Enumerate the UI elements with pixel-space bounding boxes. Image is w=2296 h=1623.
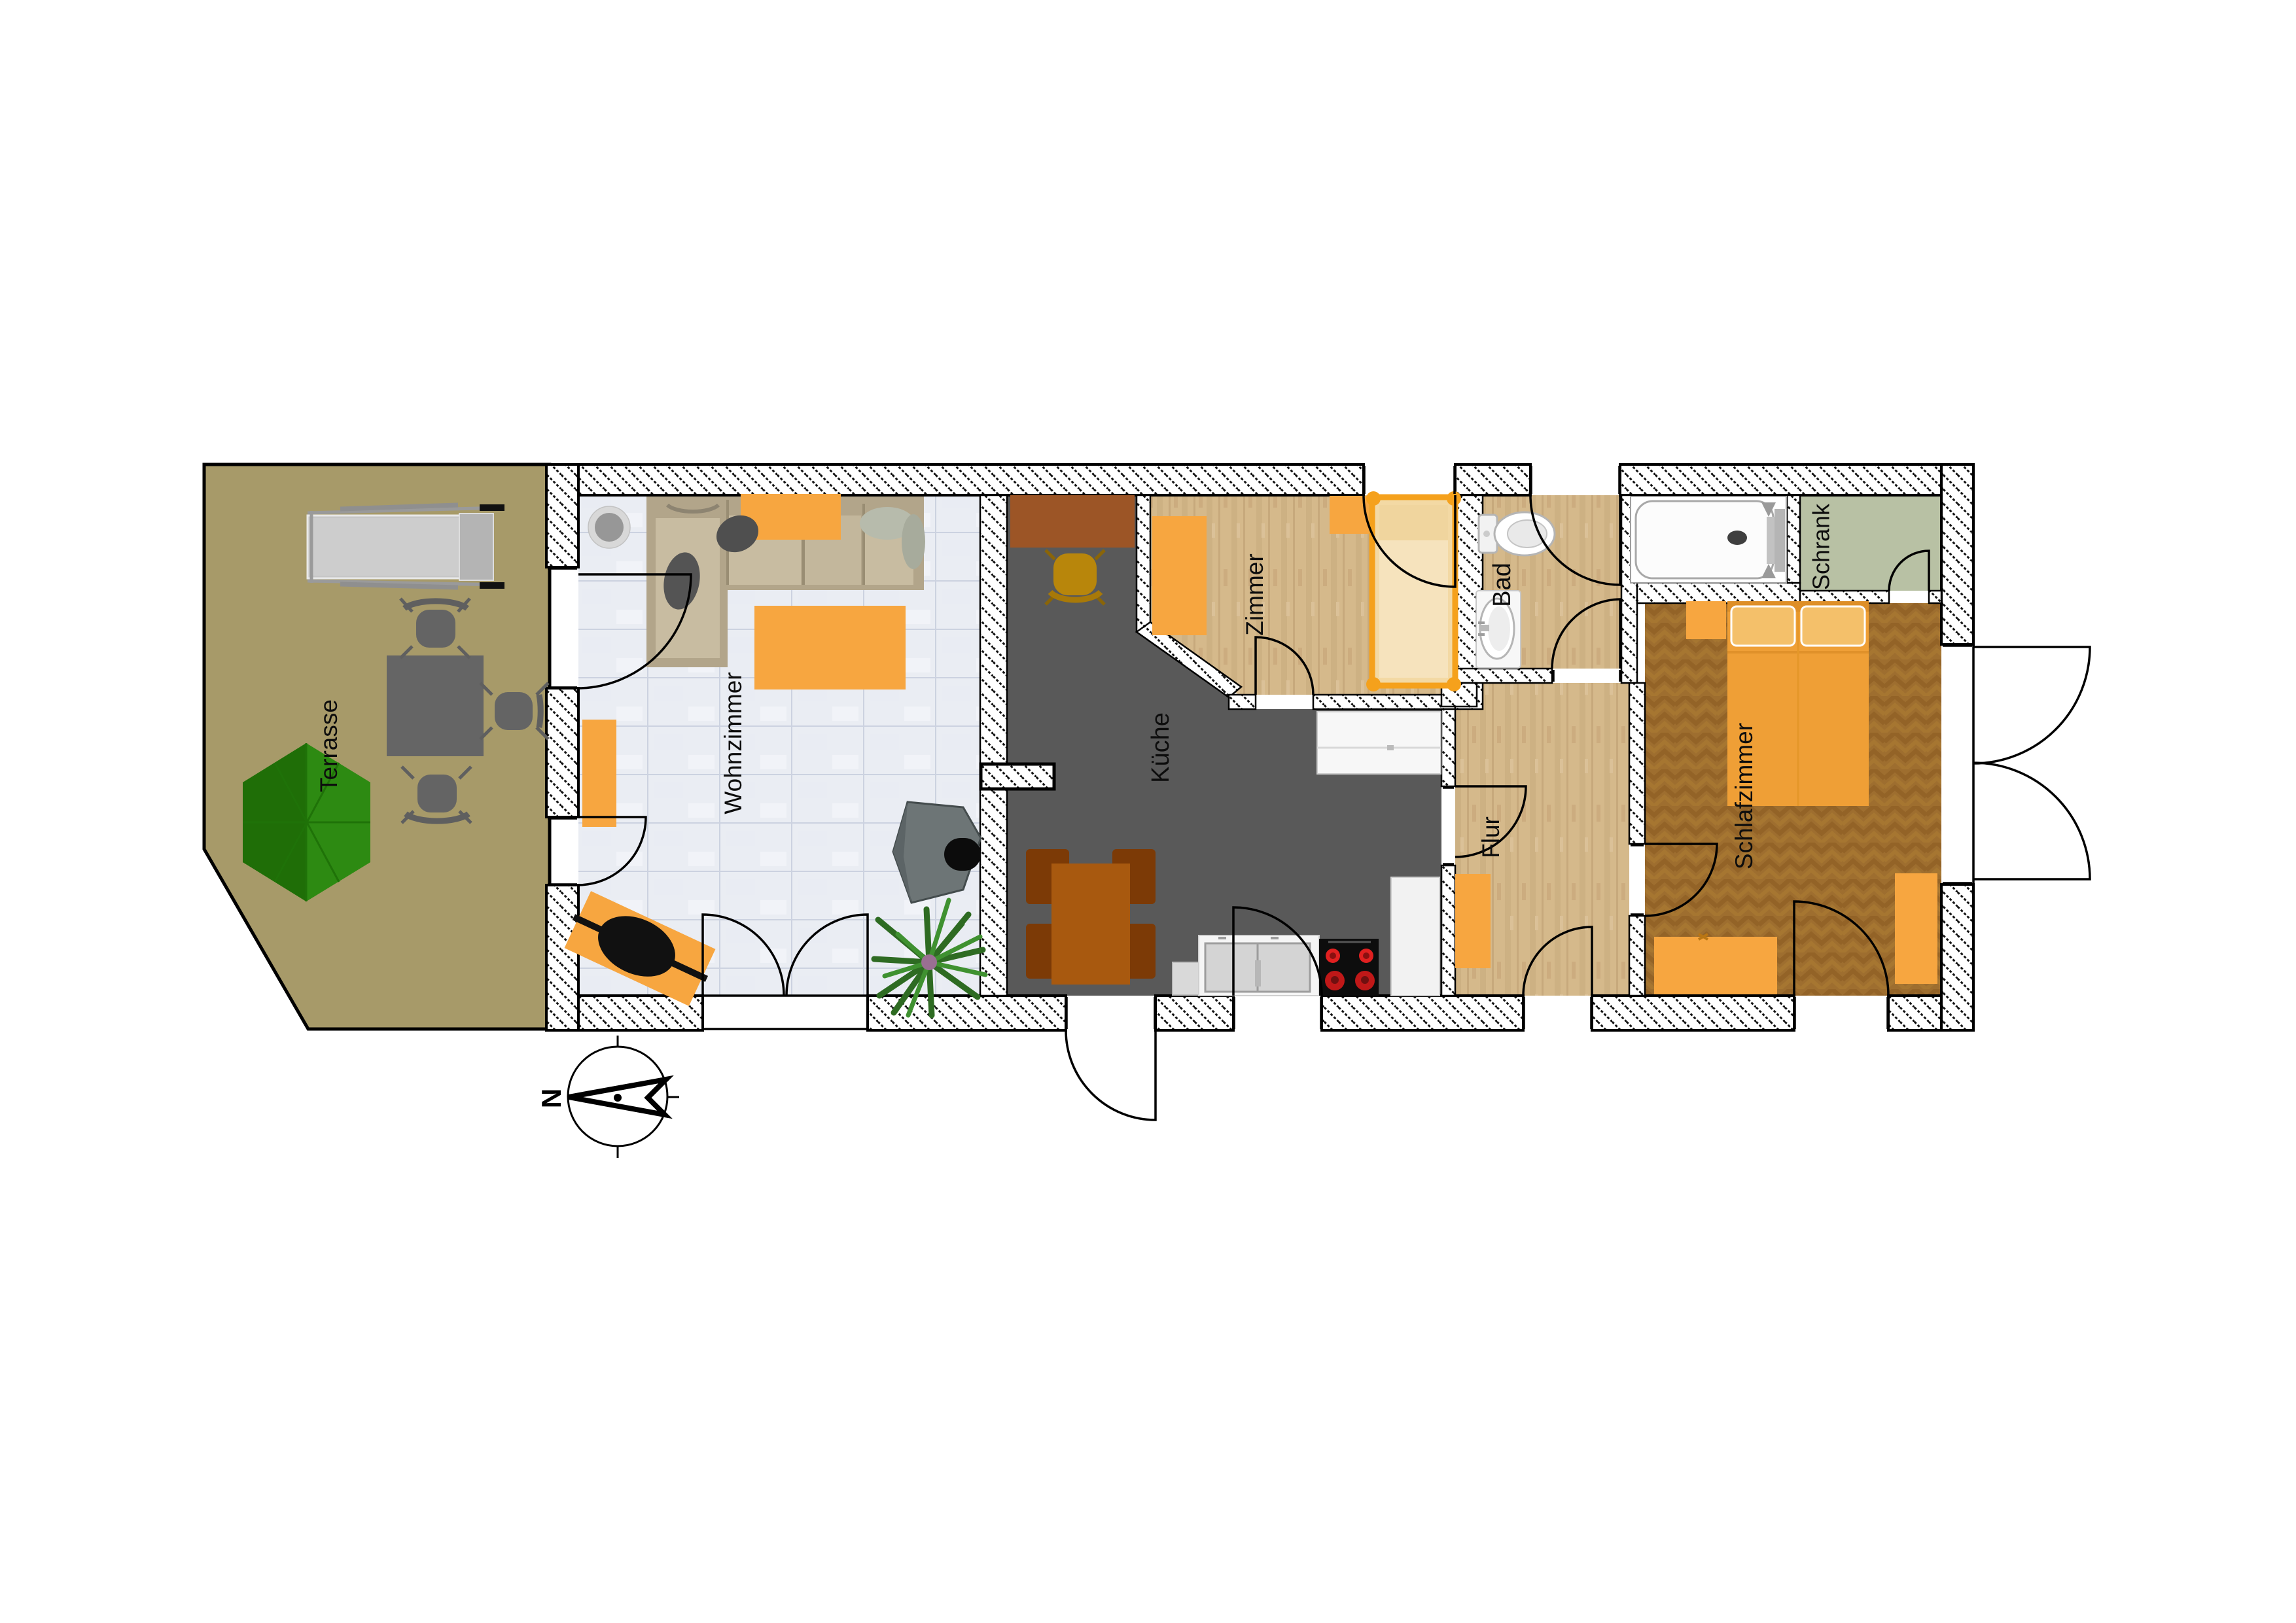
- svg-text:Schlafzimmer: Schlafzimmer: [1731, 723, 1757, 869]
- svg-text:Küche: Küche: [1147, 712, 1174, 783]
- svg-text:Wohnzimmer: Wohnzimmer: [720, 672, 747, 814]
- svg-text:Schrank: Schrank: [1808, 503, 1835, 590]
- svg-text:N: N: [536, 1089, 567, 1108]
- svg-text:Zimmer: Zimmer: [1241, 553, 1268, 635]
- svg-text:Bad: Bad: [1489, 563, 1516, 607]
- svg-text:Terrasse: Terrasse: [315, 699, 342, 792]
- svg-text:Flur: Flur: [1477, 816, 1504, 858]
